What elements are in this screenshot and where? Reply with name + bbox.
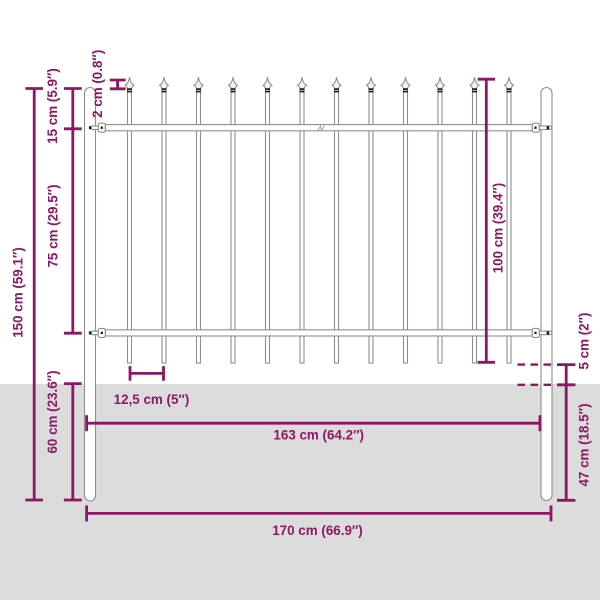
svg-text:47 cm (18.5″): 47 cm (18.5″) <box>577 403 592 486</box>
svg-text:75 cm (29.5″): 75 cm (29.5″) <box>45 184 60 267</box>
svg-text:5 cm (2″): 5 cm (2″) <box>576 312 591 369</box>
svg-text:15 cm (5.9″): 15 cm (5.9″) <box>45 68 60 144</box>
svg-text:60 cm (23.6″): 60 cm (23.6″) <box>45 370 60 453</box>
svg-text:12,5 cm (5″): 12,5 cm (5″) <box>114 392 190 407</box>
svg-text:170 cm (66.9″): 170 cm (66.9″) <box>272 523 363 538</box>
svg-text:2 cm (0.8″): 2 cm (0.8″) <box>90 50 105 118</box>
svg-text:100 cm (39.4″): 100 cm (39.4″) <box>490 183 505 274</box>
svg-text:150 cm (59.1″): 150 cm (59.1″) <box>10 247 25 338</box>
svg-text:163 cm (64.2″): 163 cm (64.2″) <box>273 428 364 443</box>
